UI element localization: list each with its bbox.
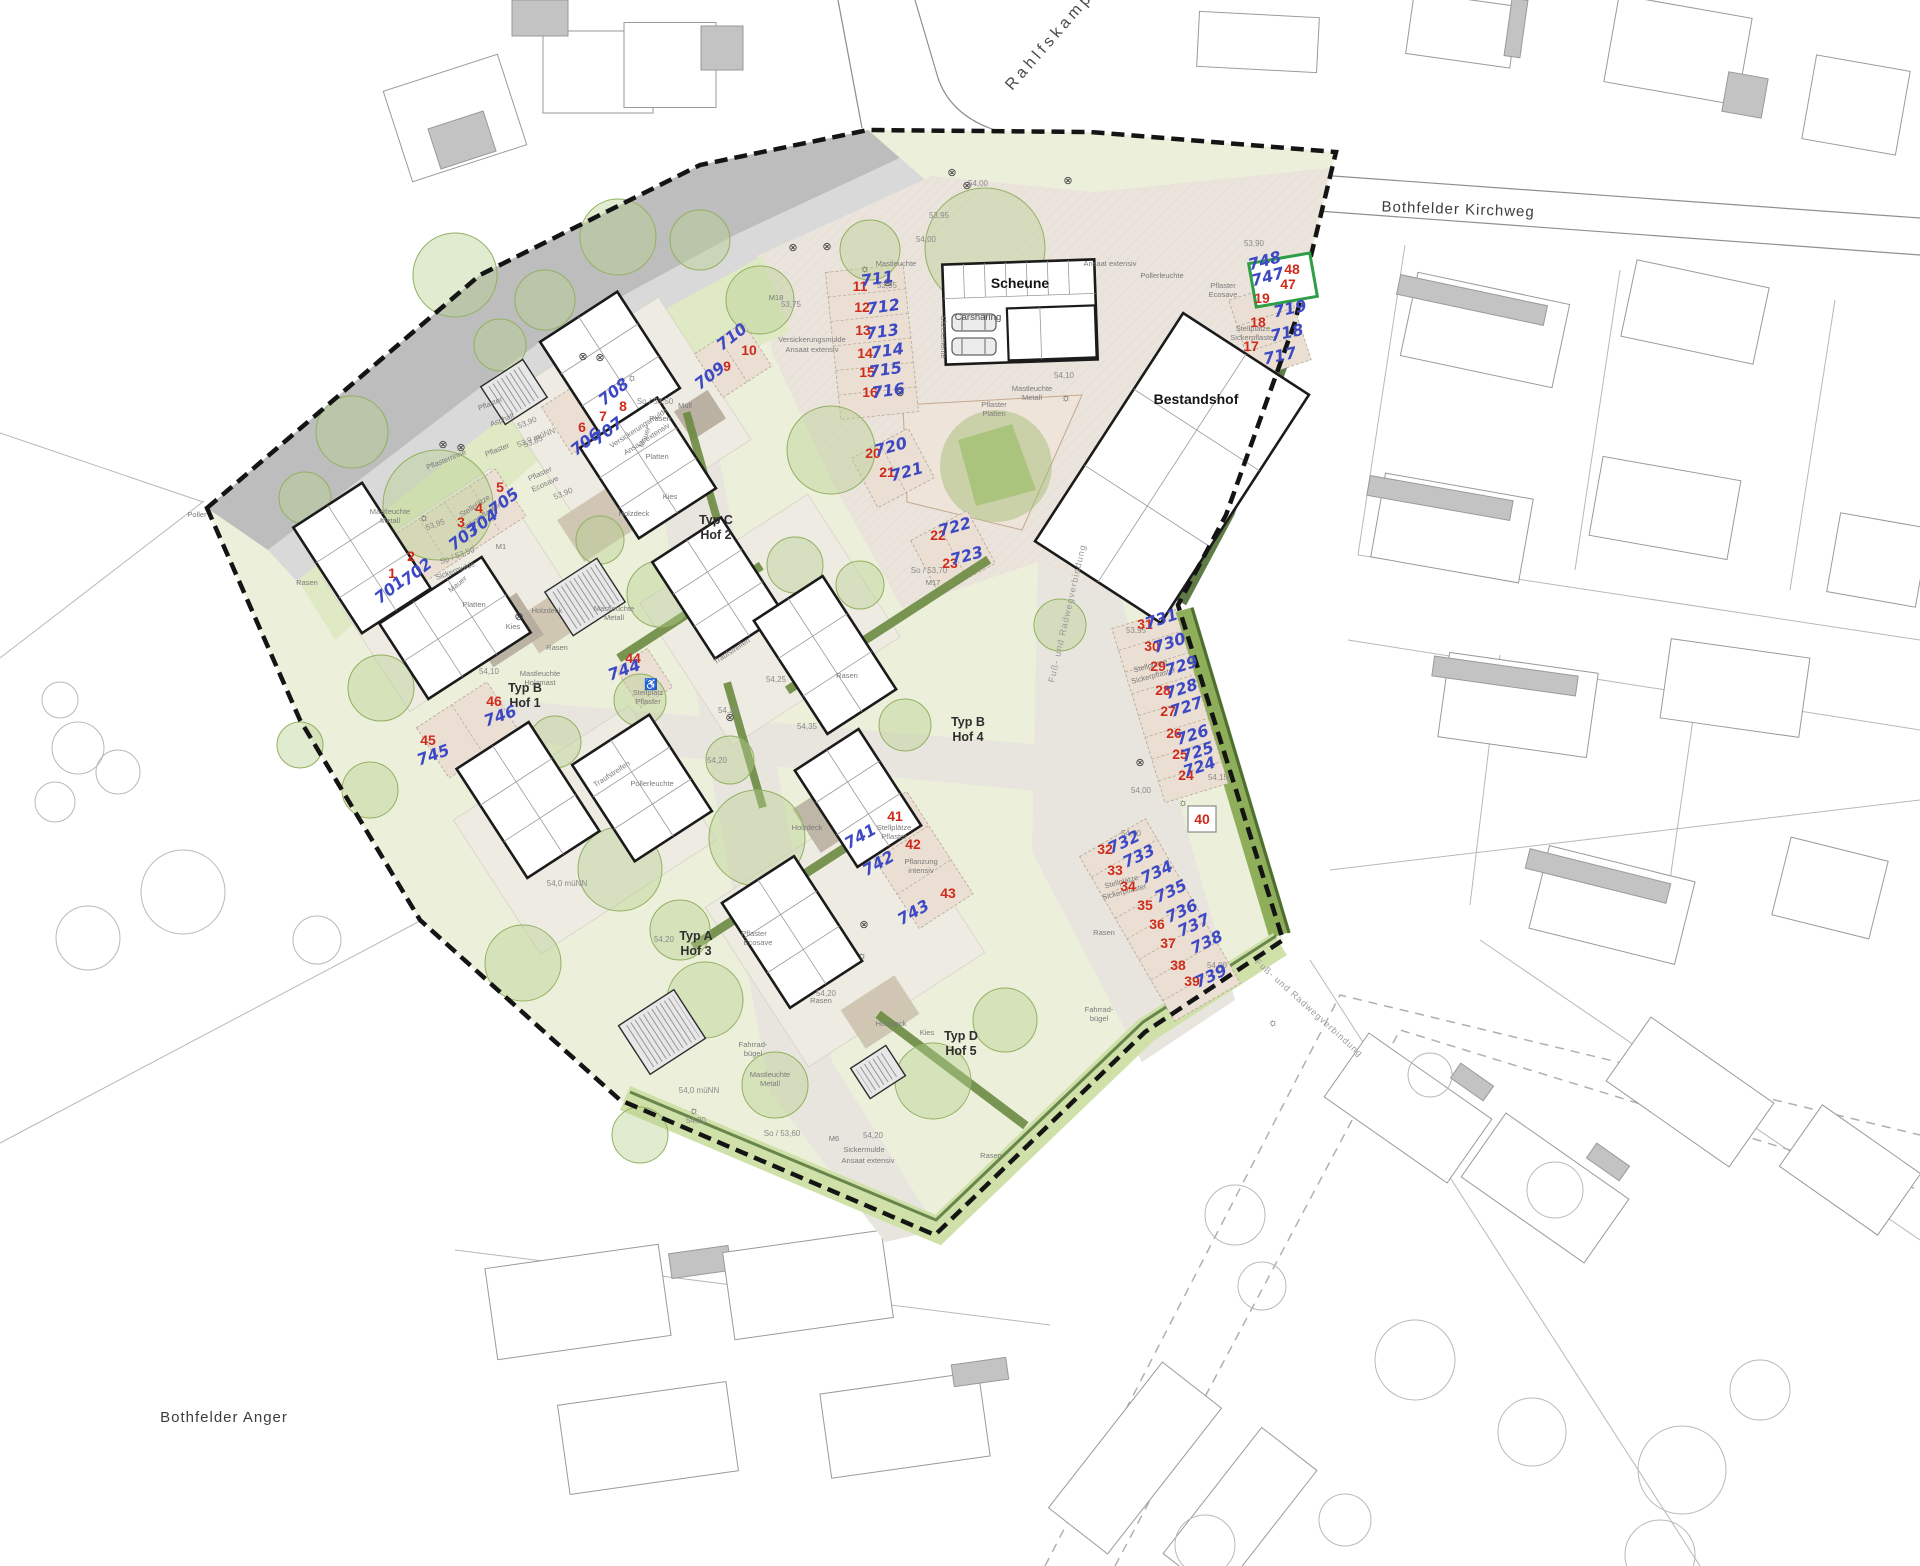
plan-label: Pollerleuchte xyxy=(1140,271,1183,280)
plan-label: 54,25 xyxy=(766,675,787,684)
context-building xyxy=(1621,260,1769,364)
context-tree xyxy=(96,750,140,794)
plan-label: 53,90 xyxy=(1244,239,1265,248)
plan-label: 53,95 xyxy=(929,211,950,220)
plan-label: Fahrrad- xyxy=(1085,1005,1114,1014)
parking-number-red: 48 xyxy=(1284,261,1300,277)
plan-label: 54,0 müNN xyxy=(547,879,588,888)
plan-label: Rasen xyxy=(836,671,858,680)
plan-label: Hof 5 xyxy=(945,1044,976,1058)
plan-label: Typ A xyxy=(679,929,712,943)
parking-number-red: 41 xyxy=(887,808,903,824)
plan-label: 54,15 xyxy=(1208,773,1229,782)
plan-label: Stellplatz xyxy=(633,688,664,697)
plan-label: Platten xyxy=(462,600,485,609)
bollard-icon: ⊗ xyxy=(822,241,831,253)
parcel-line xyxy=(1348,640,1920,730)
plan-label: 54,10 xyxy=(1054,371,1075,380)
site-plan-drawing: ⊗⊗⊗⊗⊗⊗⊗⊗⊗⊗⊗⊗⊗⊗⊗☼☼☼☼☼☼☼☼♿ RahlfskampBothf… xyxy=(0,0,1920,1566)
plan-label: Holzdeck xyxy=(619,509,650,518)
context-tree xyxy=(1498,1398,1566,1466)
plan-label: 54,20 xyxy=(654,935,675,944)
plan-label: 54,20 xyxy=(686,1116,707,1125)
context-building xyxy=(1606,1017,1774,1167)
plan-label: Typ B xyxy=(951,715,985,729)
plan-label: Holzmast xyxy=(524,678,556,687)
plan-label: 54,10 xyxy=(479,667,500,676)
context-tree xyxy=(35,782,75,822)
parking-number-red: 43 xyxy=(940,885,956,901)
context-building xyxy=(512,0,568,36)
plan-label: Platten xyxy=(982,409,1005,418)
site-tree xyxy=(973,988,1037,1052)
plan-label: So / 53,50 xyxy=(637,397,674,406)
plan-label: 54,00 xyxy=(1131,786,1152,795)
plan-label: Kies xyxy=(920,1028,935,1037)
context-building xyxy=(1779,1105,1920,1235)
bollard-icon: ⊗ xyxy=(947,167,956,179)
bollard-icon: ⊗ xyxy=(438,439,447,451)
plan-label: Fahrrad- xyxy=(739,1040,768,1049)
plan-label: Hof 3 xyxy=(680,944,711,958)
light-mast-icon: ☼ xyxy=(1061,392,1071,404)
plan-label: bügel xyxy=(744,1049,763,1058)
parking-number-red: 18 xyxy=(1250,314,1266,330)
parcel-line xyxy=(0,501,204,658)
plan-label: M1 xyxy=(496,542,506,551)
parking-number-red: 33 xyxy=(1107,862,1123,878)
bollard-icon: ⊗ xyxy=(595,352,604,364)
context-building xyxy=(1772,837,1888,939)
context-building xyxy=(1722,72,1768,118)
parking-number-red: 8 xyxy=(619,398,627,414)
context-tree xyxy=(1238,1262,1286,1310)
bollard-icon: ⊗ xyxy=(788,242,797,254)
light-mast-icon: ☼ xyxy=(857,950,867,962)
site-tree xyxy=(612,1107,668,1163)
plan-label: Rasen xyxy=(980,1151,1002,1160)
site-tree xyxy=(348,655,414,721)
site-tree xyxy=(787,406,875,494)
site-tree xyxy=(836,561,884,609)
context-building xyxy=(1589,456,1741,559)
plan-label: Versickerungsmulde xyxy=(778,335,846,344)
parking-number-red: 40 xyxy=(1194,811,1210,827)
plan-label: Pflaster xyxy=(1210,281,1236,290)
plan-label: bügel xyxy=(1090,1014,1109,1023)
context-building xyxy=(558,1382,739,1495)
plan-label: 53,75 xyxy=(781,300,802,309)
parking-number-red: 34 xyxy=(1120,878,1136,894)
plan-label: Mastleuchte xyxy=(594,604,634,613)
plan-label: Holzdeck xyxy=(792,823,823,832)
plan-label: Metall xyxy=(380,516,400,525)
context-tree xyxy=(52,722,104,774)
context-tree xyxy=(42,682,78,718)
plan-label: Pollerleuchte xyxy=(630,779,673,788)
plan-label: Pflaster xyxy=(881,832,907,841)
context-tree xyxy=(1730,1360,1790,1420)
parcel-line xyxy=(0,922,418,1143)
context-building xyxy=(820,1372,990,1478)
plan-label: 54,0 müNN xyxy=(679,1086,720,1095)
context-tree xyxy=(141,850,225,934)
parking-number-red: 42 xyxy=(905,836,921,852)
plan-label: Poller xyxy=(187,510,207,519)
context-building xyxy=(1461,1113,1629,1263)
site-plan-page: { "colors":{"parking_number_red":"#cf2b1… xyxy=(0,0,1920,1566)
site-tree xyxy=(670,210,730,270)
context-building xyxy=(1827,513,1920,607)
plan-label: Metall xyxy=(604,613,624,622)
plan-label: Rasen xyxy=(296,578,318,587)
plan-label: Ecosave xyxy=(744,938,773,947)
plan-label: Mastleuchte xyxy=(370,507,410,516)
plan-label: Carsharing xyxy=(955,312,1001,323)
plan-label: Kies xyxy=(663,492,678,501)
plan-label: Typ D xyxy=(944,1029,978,1043)
context-building xyxy=(701,26,743,70)
site-tree xyxy=(515,270,575,330)
plan-label: Platten xyxy=(645,452,668,461)
parking-number-red: 10 xyxy=(741,342,757,358)
plan-label: Pflaster xyxy=(635,697,661,706)
plan-label: Ecosave xyxy=(1209,290,1238,299)
plan-label: Mastleuchte xyxy=(520,669,560,678)
site-tree xyxy=(342,762,398,818)
plan-label: Holzdeck xyxy=(876,1019,907,1028)
bollard-icon: ⊗ xyxy=(859,919,868,931)
plan-label: Rahlfskamp xyxy=(1002,0,1096,94)
plan-label: Rasen xyxy=(649,414,671,423)
context-building xyxy=(1660,639,1810,738)
plan-label: Scheune xyxy=(991,275,1050,291)
context-tree xyxy=(1319,1494,1371,1546)
context-tree xyxy=(1638,1426,1726,1514)
plan-label: Metall xyxy=(1022,393,1042,402)
plan-label: Bothfelder Anger xyxy=(160,1409,288,1426)
plan-label: Hof 2 xyxy=(700,528,731,542)
parking-number-red: 36 xyxy=(1149,916,1165,932)
context-tree xyxy=(1205,1185,1265,1245)
plan-label: Holzdeck xyxy=(532,606,563,615)
plan-label: Stellplätze xyxy=(877,823,912,832)
parking-number-red: 38 xyxy=(1170,957,1186,973)
parking-number-red: 19 xyxy=(1254,290,1270,306)
parking-number-red: 17 xyxy=(1243,338,1259,354)
plan-label: Mastleuchte xyxy=(1012,384,1052,393)
plan-label: 54,20 xyxy=(816,989,837,998)
site-tree xyxy=(580,199,656,275)
context-building xyxy=(723,1230,894,1339)
plan-label: Sitzelemente xyxy=(939,315,948,358)
plan-label: Mastleuchte xyxy=(750,1070,790,1079)
plan-label: Hof 4 xyxy=(952,730,983,744)
light-mast-icon: ☼ xyxy=(627,372,637,384)
plan-label: Rasen xyxy=(546,643,568,652)
plan-label: Metall xyxy=(760,1079,780,1088)
plan-label: M17 xyxy=(926,578,941,587)
plan-label: Ansaat extensiv xyxy=(786,345,839,354)
context-building xyxy=(1406,0,1519,68)
plan-label: intensiv xyxy=(908,866,934,875)
rahlfskamp-road-edge xyxy=(838,0,862,128)
plan-label: 54,35 xyxy=(797,722,818,731)
plan-label: Pflaster xyxy=(741,929,767,938)
bollard-icon: ⊗ xyxy=(1063,175,1072,187)
plan-label: Mastleuchte xyxy=(876,259,916,268)
plan-label: 54,20 xyxy=(707,756,728,765)
car-icon xyxy=(952,338,996,355)
plan-label: 54,20 xyxy=(718,706,739,715)
context-building xyxy=(1324,1033,1492,1183)
parcel-line xyxy=(0,433,203,502)
plan-label: Kies xyxy=(506,622,521,631)
plan-label: 54,00 xyxy=(968,179,989,188)
parcel-line xyxy=(1790,300,1835,590)
plan-label: M6 xyxy=(829,1134,839,1143)
context-building xyxy=(669,1245,732,1278)
context-building xyxy=(1197,11,1320,72)
context-building xyxy=(951,1357,1009,1386)
plan-label: Pflanzung xyxy=(904,857,937,866)
plan-label: 54,00 xyxy=(916,235,937,244)
plan-label: 54,20 xyxy=(863,1131,884,1140)
context-tree xyxy=(1625,1520,1695,1566)
plan-label: Rasen xyxy=(1093,928,1115,937)
bollard-icon: ⊗ xyxy=(578,351,587,363)
parking-number-red: 35 xyxy=(1137,897,1153,913)
plan-label: Fuß- und Radwegverbindung xyxy=(1253,957,1365,1059)
parking-number-red: 37 xyxy=(1160,935,1176,951)
plaza-tree xyxy=(940,410,1052,522)
context-building xyxy=(1802,55,1910,155)
context-tree xyxy=(293,916,341,964)
plan-label: So / 53,60 xyxy=(764,1129,801,1138)
plan-label: Müll xyxy=(678,401,692,410)
site-tree xyxy=(879,699,931,751)
site-tree xyxy=(576,516,624,564)
context-building xyxy=(485,1244,671,1359)
plan-label: Pflaster xyxy=(981,400,1007,409)
scheune-annex xyxy=(1007,305,1097,360)
site-tree xyxy=(316,396,388,468)
light-mast-icon: ☼ xyxy=(1178,797,1188,809)
plan-label: Sickermulde xyxy=(843,1145,884,1154)
context-tree xyxy=(1375,1320,1455,1400)
plan-label: Ansaat extensiv xyxy=(842,1156,895,1165)
light-mast-icon: ☼ xyxy=(1268,1017,1278,1029)
bollard-icon: ⊗ xyxy=(1135,757,1144,769)
plan-label: Bestandshof xyxy=(1154,391,1239,407)
plan-label: Typ C xyxy=(699,513,733,527)
plan-label: Ansaat extensiv xyxy=(1084,259,1137,268)
context-tree xyxy=(56,906,120,970)
